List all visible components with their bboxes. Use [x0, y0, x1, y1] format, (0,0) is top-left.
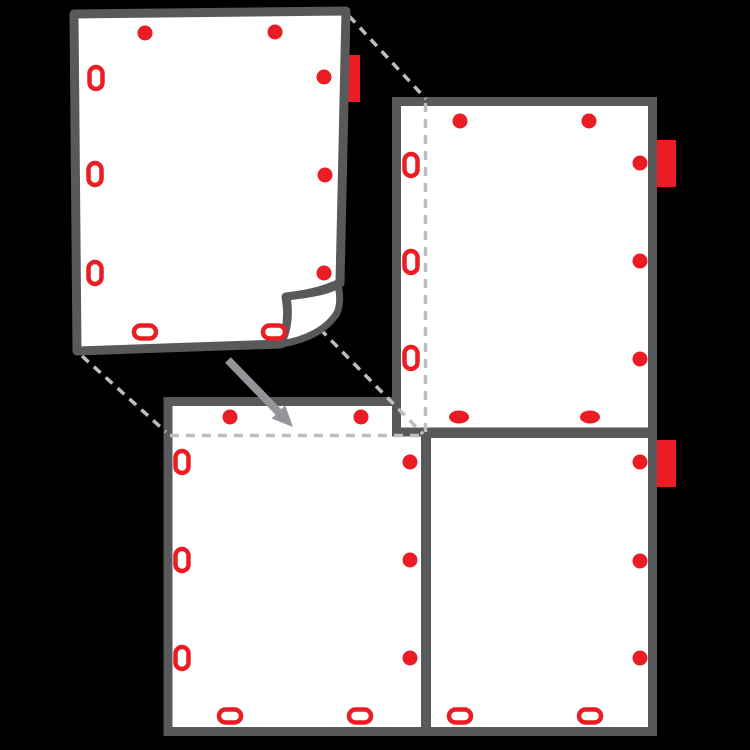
- registration-dot: [453, 114, 468, 129]
- sheet-paper: [427, 434, 653, 732]
- diagram-stage: [0, 0, 750, 750]
- solid-ellipse-marker: [580, 411, 600, 424]
- slot-marker-vertical: [89, 163, 102, 185]
- registration-dot: [403, 455, 418, 470]
- registration-dot: [317, 266, 332, 281]
- projection-guide-line: [82, 356, 166, 432]
- registration-dot: [633, 254, 648, 269]
- registration-dot: [354, 410, 369, 425]
- slot-marker-vertical: [90, 67, 103, 89]
- registration-dot: [138, 26, 153, 41]
- page-curl-flap: [281, 285, 340, 344]
- registration-dot: [633, 651, 648, 666]
- slot-marker-horizontal: [449, 710, 471, 723]
- sheet-paper: [168, 402, 426, 732]
- registration-dot: [317, 70, 332, 85]
- projection-guide-line: [349, 16, 426, 99]
- registration-dot: [633, 554, 648, 569]
- slot-marker-horizontal: [263, 326, 285, 339]
- poster-assembly-diagram: [0, 0, 750, 750]
- sheet-bottom-right-sheet: [427, 434, 677, 732]
- registration-dot: [403, 651, 418, 666]
- slot-marker-vertical: [176, 549, 189, 571]
- solid-ellipse-marker: [449, 411, 469, 424]
- slot-marker-vertical: [176, 451, 189, 473]
- registration-dot: [633, 455, 648, 470]
- sheet-bottom-left-sheet: [168, 402, 426, 732]
- slot-marker-vertical: [405, 347, 418, 369]
- slot-marker-vertical: [405, 251, 418, 273]
- slot-marker-horizontal: [134, 326, 156, 339]
- slot-marker-vertical: [405, 154, 418, 176]
- registration-dot: [633, 352, 648, 367]
- slot-marker-horizontal: [349, 710, 371, 723]
- registration-dot: [268, 25, 283, 40]
- slot-marker-horizontal: [219, 710, 241, 723]
- registration-dot: [318, 168, 333, 183]
- registration-dot: [633, 156, 648, 171]
- registration-dot: [582, 114, 597, 129]
- slot-marker-horizontal: [579, 710, 601, 723]
- registration-dot: [403, 553, 418, 568]
- registration-dot: [223, 410, 238, 425]
- sheet-lifted-sheet: [74, 11, 360, 351]
- slot-marker-vertical: [89, 262, 102, 284]
- sheet-paper: [397, 102, 653, 433]
- slot-marker-vertical: [176, 647, 189, 669]
- sheet-top-right-sheet: [397, 102, 677, 433]
